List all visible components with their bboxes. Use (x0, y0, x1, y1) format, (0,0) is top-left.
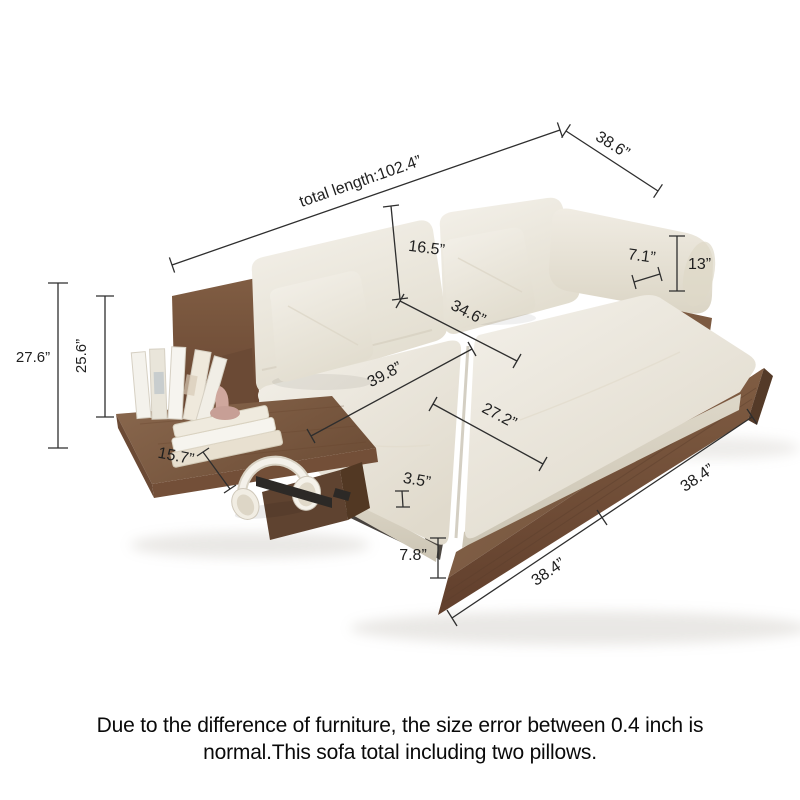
dim-label-depth: 38.6” (592, 128, 632, 162)
dim-label-bed-front-right: 38.4” (678, 461, 718, 495)
disclaimer-line-1: Due to the difference of furniture, the … (0, 712, 800, 739)
dim-label-armrest-height: 13” (688, 256, 711, 273)
dim-label-total-length: total length:102.4” (297, 153, 424, 211)
dim-label-base-height: 7.8” (399, 547, 427, 564)
dim-label-bed-front-left: 38.4” (529, 555, 569, 589)
sofa-diagram-canvas: total length:102.4” 38.6” 16.5” 7.1” 13”… (0, 0, 800, 800)
dim-label-backrest-height: 25.6” (73, 339, 90, 373)
dim-overall-height: 27.6” (16, 283, 68, 448)
disclaimer-line-2: normal.This sofa total including two pil… (0, 739, 800, 766)
dim-backrest-height: 25.6” (73, 296, 114, 417)
size-disclaimer: Due to the difference of furniture, the … (0, 712, 800, 767)
dim-depth-38-6: 38.6” (562, 124, 663, 197)
dim-label-overall-height: 27.6” (16, 349, 50, 366)
product-dimension-diagram: total length:102.4” 38.6” 16.5” 7.1” 13”… (0, 0, 800, 800)
